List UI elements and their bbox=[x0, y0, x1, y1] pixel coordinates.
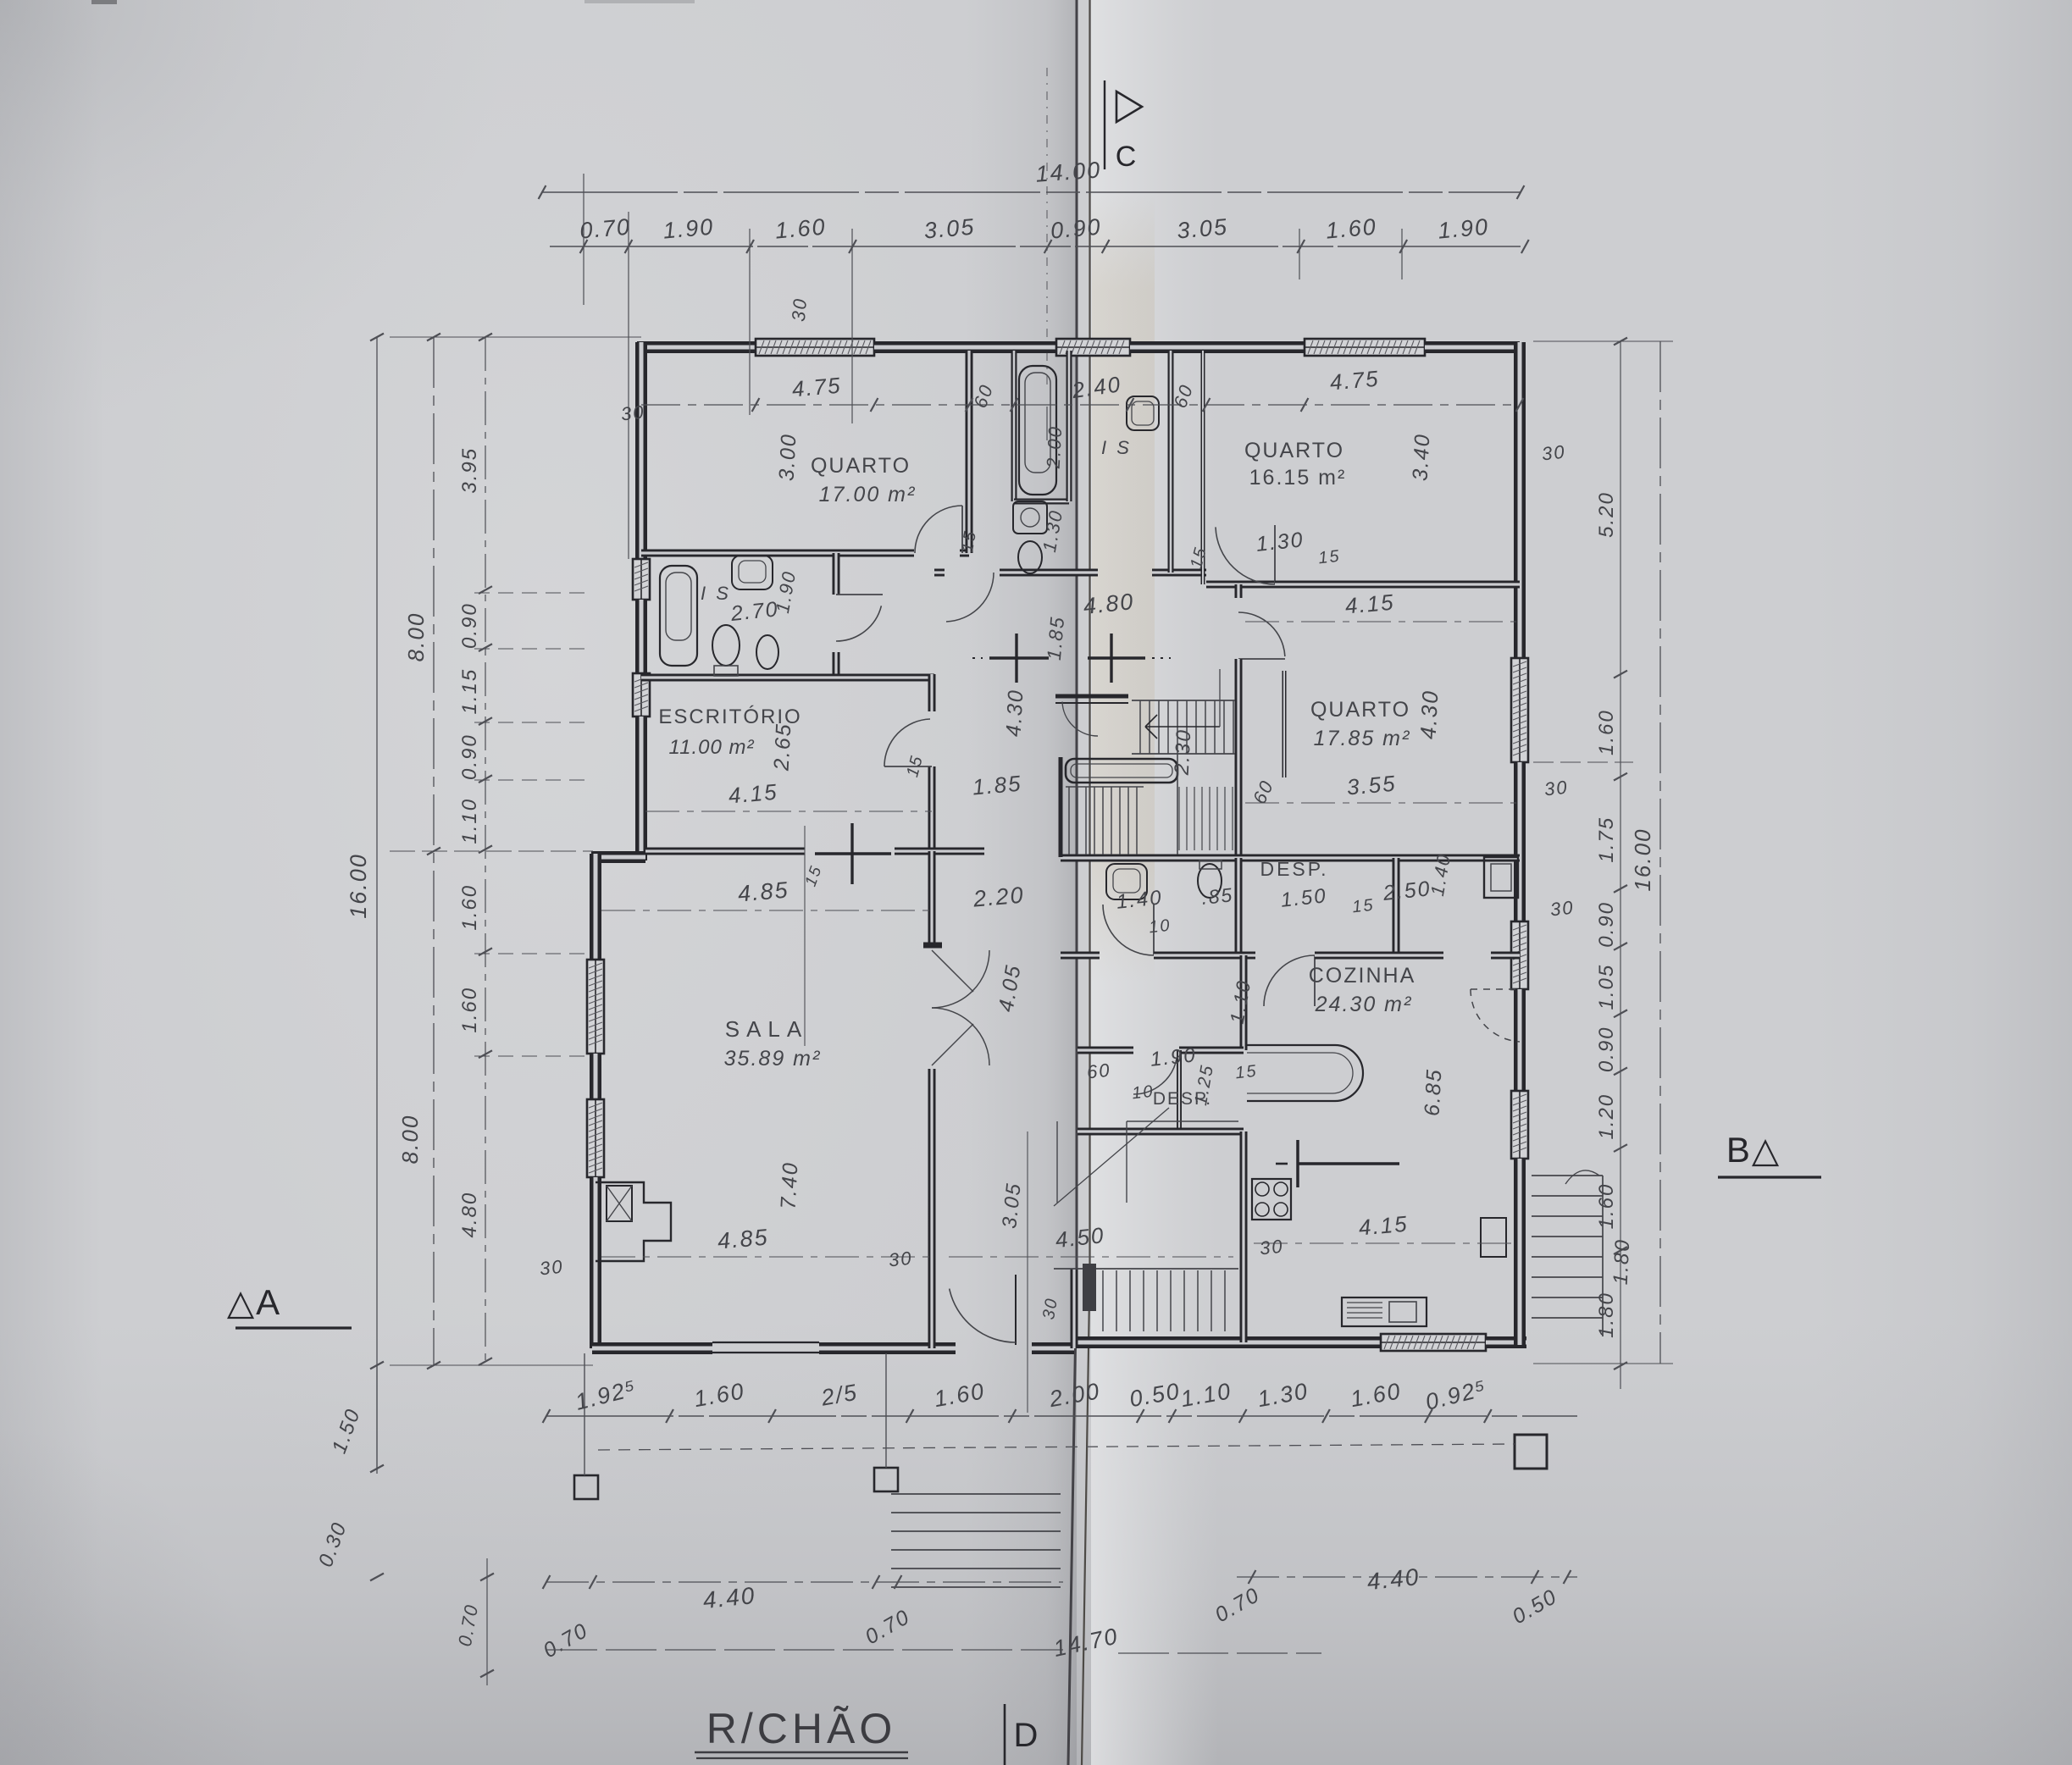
svg-text:3.05: 3.05 bbox=[1176, 213, 1229, 243]
svg-text:QUARTO: QUARTO bbox=[1310, 698, 1410, 722]
svg-text:0.90: 0.90 bbox=[1595, 1026, 1618, 1072]
svg-text:0.90: 0.90 bbox=[458, 733, 481, 780]
svg-text:1.60: 1.60 bbox=[1325, 213, 1378, 243]
svg-text:QUARTO: QUARTO bbox=[1244, 439, 1344, 462]
svg-text:R/CHÃO: R/CHÃO bbox=[706, 1705, 896, 1752]
svg-text:4.85: 4.85 bbox=[717, 1224, 770, 1253]
svg-text:0.90: 0.90 bbox=[1595, 901, 1618, 948]
svg-text:35.89 m²: 35.89 m² bbox=[724, 1047, 822, 1071]
svg-text:5.20: 5.20 bbox=[1595, 491, 1618, 538]
svg-text:0.90: 0.90 bbox=[1050, 213, 1103, 243]
svg-text:3.95: 3.95 bbox=[458, 447, 481, 494]
svg-text:I S: I S bbox=[1101, 437, 1132, 458]
svg-text:15: 15 bbox=[1234, 1062, 1258, 1083]
svg-text:2.20: 2.20 bbox=[972, 882, 1026, 911]
svg-text:1.60: 1.60 bbox=[1595, 1183, 1618, 1230]
svg-text:4.30: 4.30 bbox=[1002, 689, 1028, 738]
svg-text:4.75: 4.75 bbox=[1329, 366, 1381, 396]
svg-text:4.40: 4.40 bbox=[1366, 1563, 1421, 1595]
svg-text:15: 15 bbox=[1317, 547, 1341, 568]
svg-text:0.70: 0.70 bbox=[579, 213, 632, 243]
svg-text:3.40: 3.40 bbox=[1409, 433, 1435, 482]
svg-text:D: D bbox=[1014, 1717, 1040, 1754]
svg-text:30: 30 bbox=[1039, 1296, 1061, 1321]
svg-text:16.00: 16.00 bbox=[1630, 827, 1655, 891]
svg-text:6.85: 6.85 bbox=[1421, 1068, 1447, 1117]
svg-text:2.50: 2.50 bbox=[1382, 877, 1432, 905]
svg-text:1.15: 1.15 bbox=[458, 668, 481, 715]
svg-text:1.90: 1.90 bbox=[1150, 1043, 1198, 1071]
svg-text:1.20: 1.20 bbox=[1595, 1093, 1618, 1140]
svg-text:1.80: 1.80 bbox=[1595, 1292, 1618, 1338]
svg-text:8.00: 8.00 bbox=[397, 1115, 423, 1165]
svg-text:4.15: 4.15 bbox=[1358, 1211, 1410, 1241]
svg-text:1.85: 1.85 bbox=[972, 771, 1023, 800]
svg-text:1.40: 1.40 bbox=[1116, 886, 1164, 914]
svg-text:0.90: 0.90 bbox=[458, 602, 481, 649]
svg-text:1.60: 1.60 bbox=[1595, 709, 1618, 755]
svg-text:15: 15 bbox=[1351, 896, 1375, 917]
svg-text:4.40: 4.40 bbox=[701, 1582, 756, 1613]
svg-text:30: 30 bbox=[1259, 1236, 1285, 1259]
svg-text:1.90: 1.90 bbox=[662, 213, 715, 243]
svg-text:SALA: SALA bbox=[725, 1016, 809, 1042]
svg-text:16.00: 16.00 bbox=[346, 853, 371, 919]
svg-text:C: C bbox=[1116, 141, 1138, 173]
svg-text:10: 10 bbox=[1148, 916, 1172, 938]
svg-text:11.00 m²: 11.00 m² bbox=[669, 736, 755, 759]
svg-text:B△: B△ bbox=[1726, 1130, 1781, 1170]
svg-text:10: 10 bbox=[1131, 1082, 1155, 1104]
svg-text:3.05: 3.05 bbox=[998, 1181, 1026, 1230]
svg-text:4.80: 4.80 bbox=[1082, 589, 1135, 619]
svg-text:30: 30 bbox=[539, 1256, 565, 1280]
svg-text:4.85: 4.85 bbox=[737, 877, 790, 906]
svg-text:4.15: 4.15 bbox=[1344, 589, 1396, 619]
svg-text:3.55: 3.55 bbox=[1346, 771, 1398, 800]
svg-text:17.85 m²: 17.85 m² bbox=[1314, 727, 1411, 750]
svg-text:DESP.: DESP. bbox=[1260, 858, 1328, 880]
svg-text:8.00: 8.00 bbox=[403, 612, 429, 662]
svg-text:15: 15 bbox=[958, 528, 980, 554]
svg-text:1.60: 1.60 bbox=[458, 987, 481, 1033]
svg-text:2.65: 2.65 bbox=[769, 722, 795, 772]
svg-text:.85: .85 bbox=[1200, 883, 1234, 909]
svg-text:4.75: 4.75 bbox=[791, 373, 843, 402]
svg-text:2.70: 2.70 bbox=[729, 597, 780, 626]
svg-text:1.75: 1.75 bbox=[1595, 816, 1618, 863]
svg-text:4.30: 4.30 bbox=[1415, 689, 1443, 739]
svg-text:1.60: 1.60 bbox=[458, 884, 481, 931]
svg-text:3.00: 3.00 bbox=[775, 433, 801, 482]
svg-text:30: 30 bbox=[620, 401, 646, 425]
svg-text:1.60: 1.60 bbox=[774, 213, 828, 243]
svg-text:1.50: 1.50 bbox=[1280, 884, 1328, 912]
svg-text:4.50: 4.50 bbox=[1054, 1222, 1105, 1253]
svg-text:3.05: 3.05 bbox=[923, 213, 977, 243]
svg-text:30: 30 bbox=[1549, 897, 1576, 921]
svg-text:2.30: 2.30 bbox=[1171, 728, 1196, 777]
svg-text:1.80: 1.80 bbox=[1609, 1238, 1635, 1286]
svg-text:1.85: 1.85 bbox=[1043, 615, 1068, 661]
svg-text:60: 60 bbox=[1086, 1060, 1112, 1083]
svg-text:7.40: 7.40 bbox=[777, 1161, 803, 1210]
svg-text:30: 30 bbox=[888, 1248, 914, 1271]
svg-text:I S: I S bbox=[701, 583, 731, 604]
svg-text:△A: △A bbox=[227, 1282, 281, 1322]
svg-text:14.00: 14.00 bbox=[1035, 157, 1102, 186]
svg-text:QUARTO: QUARTO bbox=[811, 454, 911, 478]
svg-text:1.10: 1.10 bbox=[458, 798, 481, 844]
svg-text:24.30 m²: 24.30 m² bbox=[1315, 993, 1413, 1016]
svg-text:2.00: 2.00 bbox=[1043, 425, 1066, 470]
svg-text:ESCRITÓRIO: ESCRITÓRIO bbox=[658, 705, 801, 728]
svg-text:30: 30 bbox=[1543, 777, 1570, 800]
svg-text:30: 30 bbox=[788, 296, 811, 323]
svg-text:30: 30 bbox=[1541, 441, 1567, 465]
svg-text:1.05: 1.05 bbox=[1595, 964, 1618, 1010]
svg-text:COZINHA: COZINHA bbox=[1309, 964, 1416, 988]
svg-text:1.90: 1.90 bbox=[1437, 213, 1490, 243]
svg-text:17.00 m²: 17.00 m² bbox=[819, 483, 917, 506]
svg-text:4.80: 4.80 bbox=[458, 1192, 481, 1238]
svg-text:16.15 m²: 16.15 m² bbox=[1249, 466, 1347, 490]
svg-text:4.15: 4.15 bbox=[728, 779, 779, 809]
svg-text:1.30: 1.30 bbox=[1255, 528, 1305, 556]
